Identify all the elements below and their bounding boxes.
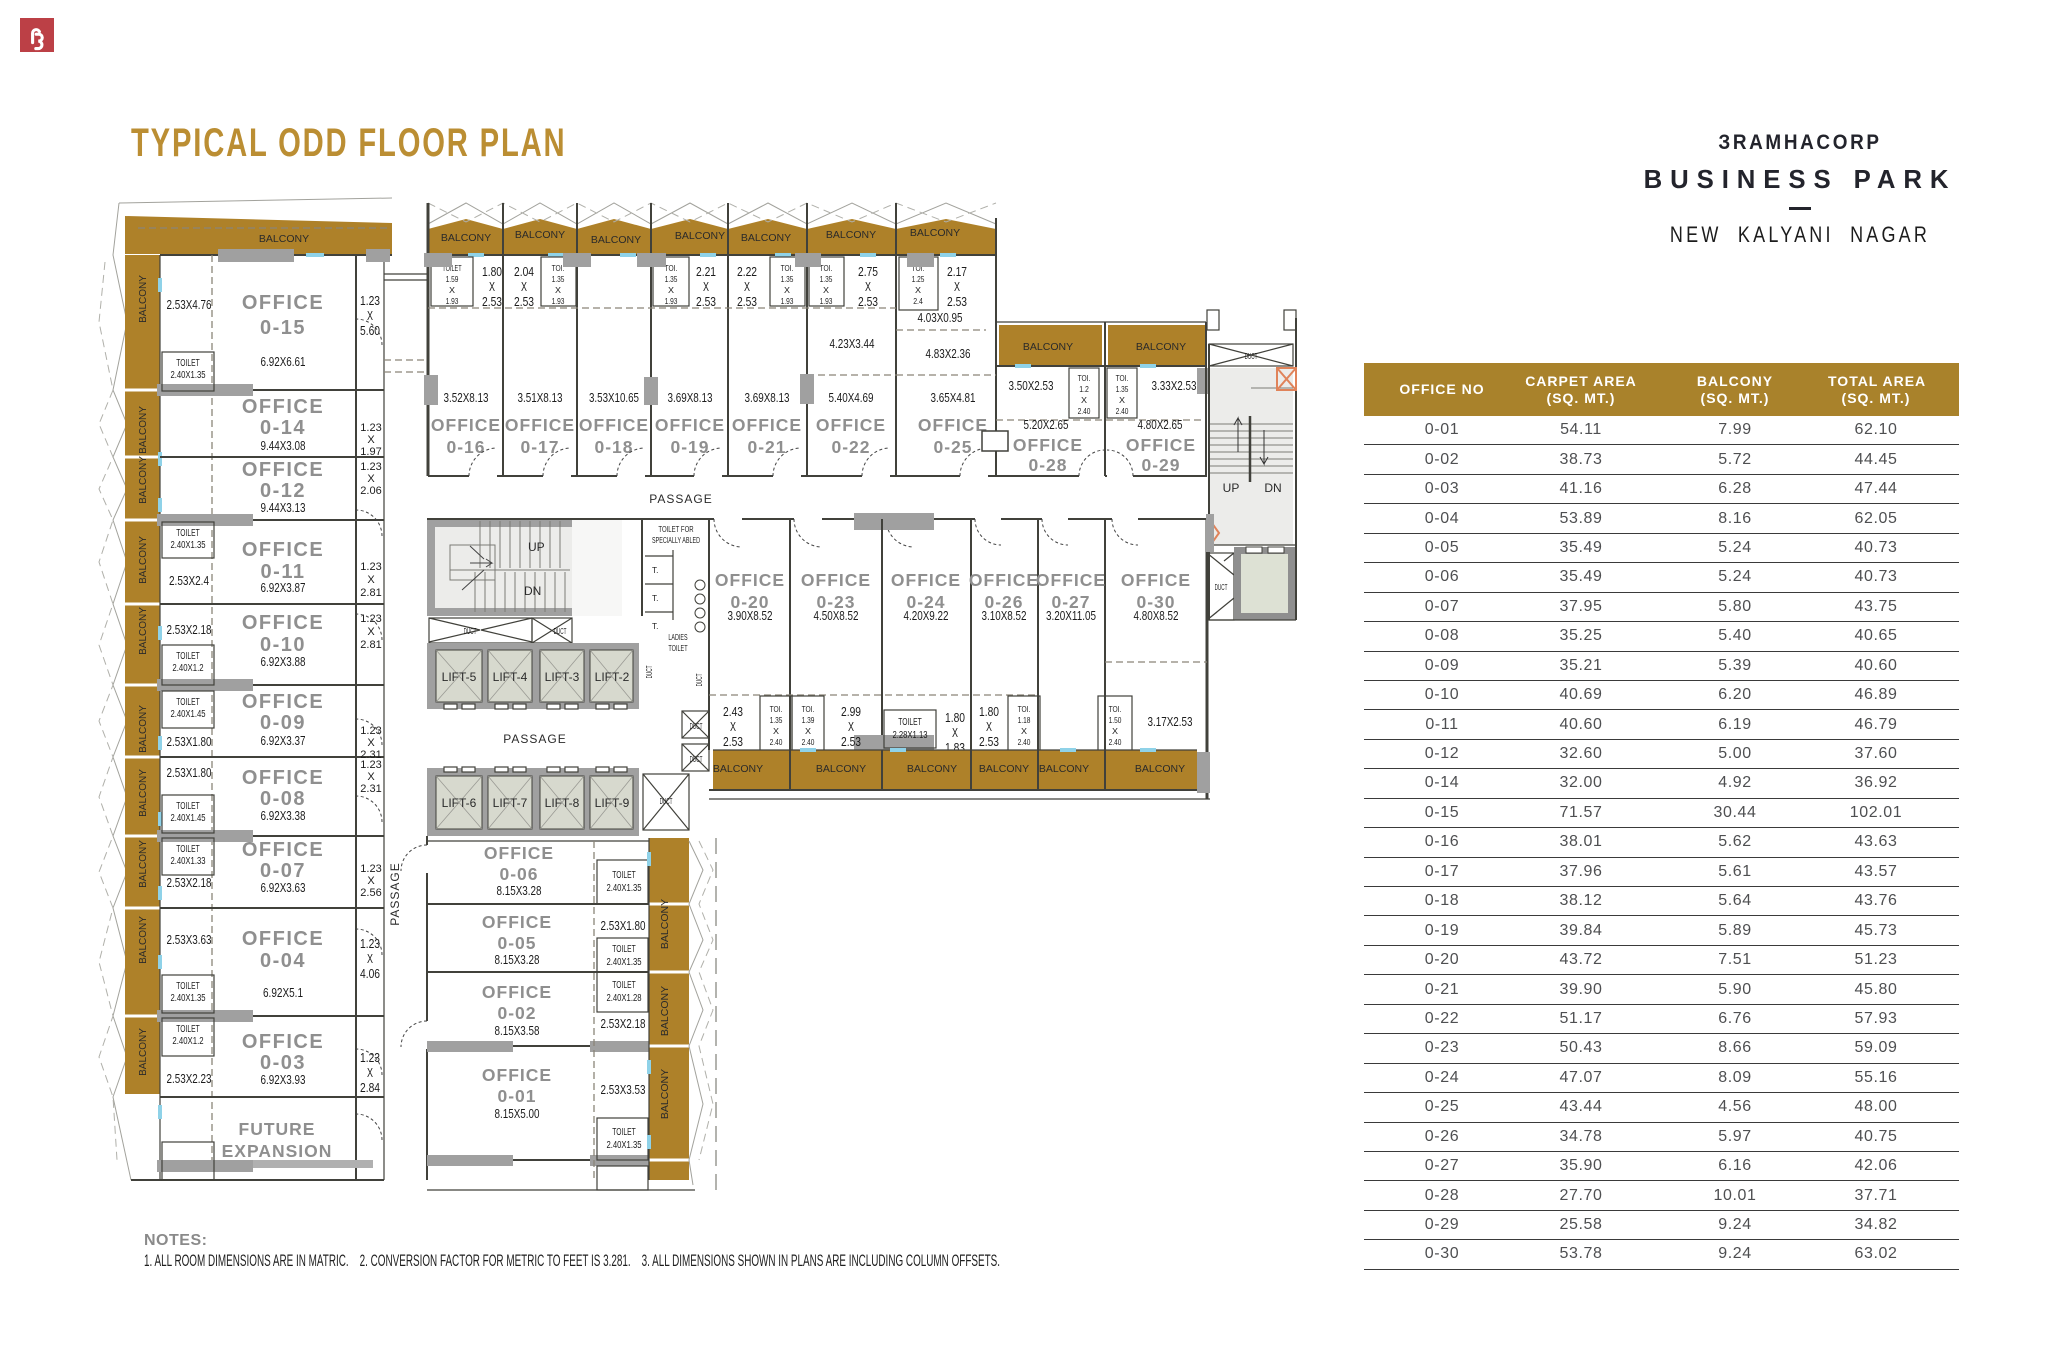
svg-text:3.65X4.81: 3.65X4.81 (931, 390, 976, 405)
svg-text:6.92X3.87: 6.92X3.87 (261, 580, 306, 595)
svg-text:2.53X3.53: 2.53X3.53 (601, 1082, 646, 1097)
svg-text:X: X (823, 285, 829, 295)
svg-text:OFFICE: OFFICE (1036, 570, 1106, 590)
svg-text:2.40: 2.40 (802, 737, 815, 747)
svg-text:X: X (489, 279, 495, 294)
svg-text:DN: DN (1264, 481, 1281, 495)
svg-text:DUCT: DUCT (690, 754, 703, 764)
svg-text:BALCONY: BALCONY (259, 233, 309, 245)
svg-text:X: X (703, 279, 709, 294)
svg-text:1.23: 1.23 (360, 759, 381, 771)
svg-text:X: X (865, 279, 871, 294)
svg-text:TOI.: TOI. (1018, 704, 1031, 714)
svg-text:3.33X2.53: 3.33X2.53 (1152, 378, 1197, 393)
svg-text:3.53X10.65: 3.53X10.65 (589, 390, 639, 405)
svg-text:3.90X8.52: 3.90X8.52 (728, 608, 773, 623)
svg-text:0-12: 0-12 (260, 480, 306, 502)
svg-text:X: X (367, 434, 375, 446)
svg-text:0-01: 0-01 (497, 1086, 536, 1106)
svg-text:3.51X8.13: 3.51X8.13 (518, 390, 563, 405)
svg-text:X: X (1119, 395, 1125, 405)
svg-text:2.53X3.63: 2.53X3.63 (167, 932, 212, 947)
svg-text:X: X (521, 279, 527, 294)
svg-text:BALCONY: BALCONY (515, 229, 565, 241)
svg-text:6.92X3.37: 6.92X3.37 (261, 733, 306, 748)
svg-text:2.53: 2.53 (858, 294, 878, 309)
svg-text:BALCONY: BALCONY (741, 232, 791, 244)
svg-text:X: X (730, 719, 736, 734)
svg-text:1.35: 1.35 (820, 274, 833, 284)
svg-text:1.23: 1.23 (360, 936, 380, 951)
svg-text:X: X (773, 726, 779, 736)
svg-text:TOILET: TOILET (668, 643, 688, 653)
svg-text:0-07: 0-07 (260, 860, 306, 882)
svg-text:2.28X1.13: 2.28X1.13 (892, 730, 927, 741)
svg-text:OFFICE: OFFICE (1121, 570, 1191, 590)
svg-text:LIFT-7: LIFT-7 (493, 796, 528, 810)
svg-text:2.53: 2.53 (514, 294, 534, 309)
svg-text:1.23: 1.23 (360, 1050, 380, 1065)
svg-text:1.50: 1.50 (1109, 715, 1122, 725)
svg-text:OFFICE: OFFICE (482, 912, 552, 932)
svg-text:DUCT: DUCT (694, 673, 704, 686)
svg-text:2.40: 2.40 (1018, 737, 1031, 747)
svg-text:0-16: 0-16 (446, 437, 485, 457)
svg-text:OFFICE: OFFICE (918, 415, 988, 435)
svg-text:BALCONY: BALCONY (138, 456, 149, 504)
svg-text:T.: T. (652, 565, 658, 575)
svg-text:X: X (784, 285, 790, 295)
svg-text:2.99: 2.99 (841, 704, 861, 719)
svg-text:OFFICE: OFFICE (242, 928, 324, 950)
svg-text:OFFICE: OFFICE (242, 292, 324, 314)
svg-text:0-05: 0-05 (497, 933, 536, 953)
svg-text:4.80X8.52: 4.80X8.52 (1134, 608, 1179, 623)
svg-text:X: X (954, 279, 960, 294)
svg-text:DN: DN (524, 584, 541, 598)
svg-text:5.40X4.69: 5.40X4.69 (829, 390, 874, 405)
svg-text:BALCONY: BALCONY (1023, 341, 1073, 353)
svg-text:BALCONY: BALCONY (441, 232, 491, 244)
svg-text:2.53: 2.53 (947, 294, 967, 309)
svg-text:2.53X2.4: 2.53X2.4 (169, 573, 209, 588)
svg-text:X: X (1021, 726, 1027, 736)
svg-text:TOILET: TOILET (176, 651, 199, 662)
svg-text:4.23X3.44: 4.23X3.44 (830, 336, 875, 351)
svg-text:1.80: 1.80 (945, 710, 965, 725)
svg-text:0-21: 0-21 (747, 437, 786, 457)
svg-text:PASSAGE: PASSAGE (503, 732, 566, 746)
svg-text:2.40X1.35: 2.40X1.35 (606, 957, 641, 968)
svg-text:6.92X3.38: 6.92X3.38 (261, 808, 306, 823)
svg-text:X: X (744, 279, 750, 294)
svg-text:2.40X1.35: 2.40X1.35 (170, 370, 205, 381)
svg-text:LIFT-9: LIFT-9 (595, 796, 630, 810)
svg-text:EXPANSION: EXPANSION (222, 1141, 333, 1161)
svg-text:2.40X1.2: 2.40X1.2 (172, 1036, 204, 1047)
svg-text:TOILET: TOILET (176, 528, 199, 539)
svg-text:0-09: 0-09 (260, 712, 306, 734)
svg-text:2.53: 2.53 (723, 734, 743, 749)
svg-text:1.23: 1.23 (360, 725, 381, 737)
svg-text:0-04: 0-04 (260, 950, 306, 972)
svg-text:TOI.: TOI. (781, 263, 794, 273)
svg-text:6.92X3.88: 6.92X3.88 (261, 654, 306, 669)
svg-text:BALCONY: BALCONY (1039, 763, 1089, 775)
svg-text:OFFICE: OFFICE (505, 415, 575, 435)
svg-text:1.35: 1.35 (665, 274, 678, 284)
svg-text:BALCONY: BALCONY (816, 763, 866, 775)
svg-text:OFFICE: OFFICE (655, 415, 725, 435)
svg-text:TOILET: TOILET (612, 870, 635, 881)
svg-text:1.97: 1.97 (360, 446, 381, 458)
svg-text:X: X (805, 726, 811, 736)
svg-text:6.92X3.63: 6.92X3.63 (261, 880, 306, 895)
svg-text:X: X (449, 285, 455, 295)
svg-text:SPECIALLY ABLED: SPECIALLY ABLED (652, 535, 700, 545)
svg-text:X: X (668, 285, 674, 295)
svg-text:1.23: 1.23 (360, 293, 380, 308)
svg-text:BALCONY: BALCONY (826, 229, 876, 241)
svg-text:OFFICE: OFFICE (242, 612, 324, 634)
svg-text:2.06: 2.06 (360, 485, 381, 497)
svg-text:LIFT-5: LIFT-5 (442, 670, 477, 684)
svg-text:X: X (367, 951, 373, 966)
svg-text:FUTURE: FUTURE (239, 1119, 316, 1139)
svg-text:UP: UP (528, 540, 545, 554)
svg-text:T.: T. (652, 621, 658, 631)
svg-text:2.75: 2.75 (858, 264, 878, 279)
svg-text:2.53: 2.53 (979, 734, 999, 749)
svg-text:2.53X2.18: 2.53X2.18 (167, 622, 212, 637)
svg-text:1.93: 1.93 (446, 296, 459, 306)
svg-text:TOILET: TOILET (176, 801, 199, 812)
svg-text:BALCONY: BALCONY (979, 763, 1029, 775)
svg-text:OFFICE: OFFICE (732, 415, 802, 435)
svg-text:2.40X1.35: 2.40X1.35 (170, 540, 205, 551)
svg-text:OFFICE: OFFICE (242, 767, 324, 789)
svg-text:1.39: 1.39 (802, 715, 815, 725)
svg-text:3.52X8.13: 3.52X8.13 (444, 390, 489, 405)
svg-text:DUCT: DUCT (1215, 582, 1228, 592)
svg-text:DUCT: DUCT (1245, 351, 1258, 361)
svg-text:2.53X4.76: 2.53X4.76 (167, 297, 212, 312)
svg-text:1.2: 1.2 (1079, 384, 1089, 394)
svg-text:OFFICE: OFFICE (891, 570, 961, 590)
svg-text:X: X (952, 725, 958, 740)
svg-text:0-10: 0-10 (260, 634, 306, 656)
svg-text:4.06: 4.06 (360, 966, 380, 981)
svg-text:BALCONY: BALCONY (659, 899, 671, 949)
svg-text:0-15: 0-15 (260, 317, 306, 339)
svg-text:2.43: 2.43 (723, 704, 743, 719)
svg-text:1.23: 1.23 (360, 461, 381, 473)
svg-text:OFFICE: OFFICE (1126, 435, 1196, 455)
svg-text:LADIES: LADIES (668, 632, 687, 642)
svg-text:BALCONY: BALCONY (138, 607, 149, 655)
svg-text:BALCONY: BALCONY (659, 986, 671, 1036)
svg-text:OFFICE: OFFICE (242, 1031, 324, 1053)
svg-text:2.40X1.2: 2.40X1.2 (172, 663, 204, 674)
svg-text:X: X (367, 308, 373, 323)
svg-text:X: X (915, 285, 921, 295)
svg-text:8.15X3.28: 8.15X3.28 (495, 952, 540, 967)
svg-text:2.53X2.18: 2.53X2.18 (167, 875, 212, 890)
svg-text:3.10X8.52: 3.10X8.52 (982, 608, 1027, 623)
svg-text:X: X (367, 737, 375, 749)
svg-text:BALCONY: BALCONY (659, 1069, 671, 1119)
svg-text:BALCONY: BALCONY (907, 763, 957, 775)
svg-text:2.22: 2.22 (737, 264, 757, 279)
svg-text:2.40X1.33: 2.40X1.33 (170, 856, 205, 867)
svg-text:6.92X6.61: 6.92X6.61 (261, 354, 306, 369)
svg-text:OFFICE: OFFICE (1013, 435, 1083, 455)
svg-text:0-29: 0-29 (1141, 455, 1180, 475)
svg-text:TOI.: TOI. (552, 263, 565, 273)
svg-text:TOILET: TOILET (176, 844, 199, 855)
svg-text:0-28: 0-28 (1028, 455, 1067, 475)
svg-text:X: X (555, 285, 561, 295)
svg-text:BALCONY: BALCONY (591, 234, 641, 246)
svg-text:1.35: 1.35 (781, 274, 794, 284)
svg-text:BALCONY: BALCONY (910, 227, 960, 239)
svg-text:TOILET: TOILET (176, 981, 199, 992)
svg-text:4.83X2.36: 4.83X2.36 (926, 346, 971, 361)
svg-text:1.23: 1.23 (360, 561, 381, 573)
svg-text:TOILET: TOILET (176, 1024, 199, 1035)
svg-text:TOILET: TOILET (898, 717, 921, 728)
svg-text:0-25: 0-25 (933, 437, 972, 457)
svg-text:LIFT-2: LIFT-2 (595, 670, 630, 684)
svg-text:T.: T. (652, 593, 658, 603)
svg-text:OFFICE: OFFICE (242, 396, 324, 418)
svg-text:OFFICE: OFFICE (816, 415, 886, 435)
svg-text:1.80: 1.80 (979, 704, 999, 719)
svg-text:2.53X2.23: 2.53X2.23 (167, 1071, 212, 1086)
svg-text:1.59: 1.59 (446, 274, 459, 284)
svg-text:X: X (848, 719, 854, 734)
svg-text:1.25: 1.25 (912, 274, 925, 284)
svg-text:2.40: 2.40 (1078, 406, 1091, 416)
svg-text:0-19: 0-19 (670, 437, 709, 457)
svg-text:2.40X1.35: 2.40X1.35 (170, 993, 205, 1004)
svg-text:2.40X1.28: 2.40X1.28 (606, 993, 641, 1004)
svg-text:4.80X2.65: 4.80X2.65 (1138, 417, 1183, 432)
svg-text:TOILET: TOILET (176, 697, 199, 708)
svg-text:2.40: 2.40 (770, 737, 783, 747)
svg-text:1.23: 1.23 (360, 863, 381, 875)
svg-text:2.17: 2.17 (947, 264, 967, 279)
svg-text:2.81: 2.81 (360, 639, 381, 651)
svg-text:BALCONY: BALCONY (138, 916, 149, 964)
svg-text:OFFICE: OFFICE (484, 843, 554, 863)
svg-text:BALCONY: BALCONY (138, 705, 149, 753)
svg-text:X: X (367, 1065, 373, 1080)
svg-text:5.60: 5.60 (360, 323, 380, 338)
svg-text:2.81: 2.81 (360, 587, 381, 599)
svg-text:BALCONY: BALCONY (138, 1028, 149, 1076)
svg-text:0-22: 0-22 (831, 437, 870, 457)
svg-text:3.20X11.05: 3.20X11.05 (1046, 608, 1096, 623)
svg-text:OFFICE: OFFICE (242, 839, 324, 861)
svg-text:X: X (1081, 395, 1087, 405)
svg-text:8.15X3.28: 8.15X3.28 (497, 883, 542, 898)
svg-text:0-02: 0-02 (497, 1003, 536, 1023)
svg-text:0-17: 0-17 (520, 437, 559, 457)
svg-text:OFFICE: OFFICE (801, 570, 871, 590)
svg-text:UP: UP (1223, 481, 1240, 495)
svg-text:BALCONY: BALCONY (713, 763, 763, 775)
svg-text:2.56: 2.56 (360, 887, 381, 899)
svg-text:TOI.: TOI. (1116, 373, 1129, 383)
svg-text:8.15X5.00: 8.15X5.00 (495, 1106, 540, 1121)
svg-text:TOI.: TOI. (770, 704, 783, 714)
svg-text:BALCONY: BALCONY (675, 230, 725, 242)
svg-text:BALCONY: BALCONY (138, 769, 149, 817)
svg-text:X: X (367, 473, 375, 485)
svg-text:2.40: 2.40 (1116, 406, 1129, 416)
svg-text:BALCONY: BALCONY (1135, 763, 1185, 775)
svg-text:0-18: 0-18 (594, 437, 633, 457)
svg-text:2.53: 2.53 (737, 294, 757, 309)
svg-text:0-03: 0-03 (260, 1052, 306, 1074)
svg-text:TOILET FOR: TOILET FOR (658, 524, 693, 534)
svg-text:OFFICE: OFFICE (242, 539, 324, 561)
svg-text:3.50X2.53: 3.50X2.53 (1009, 378, 1054, 393)
svg-text:DUCT: DUCT (644, 665, 654, 678)
svg-text:1.93: 1.93 (665, 296, 678, 306)
svg-text:0-06: 0-06 (499, 864, 538, 884)
svg-text:5.20X2.65: 5.20X2.65 (1024, 417, 1069, 432)
svg-text:2.84: 2.84 (360, 1080, 380, 1095)
svg-text:OFFICE: OFFICE (715, 570, 785, 590)
svg-text:TOI.: TOI. (802, 704, 815, 714)
svg-text:1.35: 1.35 (770, 715, 783, 725)
svg-text:2.40X1.45: 2.40X1.45 (170, 709, 205, 720)
svg-text:OFFICE: OFFICE (482, 982, 552, 1002)
svg-text:1.93: 1.93 (552, 296, 565, 306)
svg-text:TOILET: TOILET (612, 980, 635, 991)
svg-text:LIFT-8: LIFT-8 (545, 796, 580, 810)
svg-text:2.53: 2.53 (696, 294, 716, 309)
svg-text:2.40X1.45: 2.40X1.45 (170, 813, 205, 824)
svg-text:DUCT: DUCT (660, 796, 673, 806)
svg-text:2.53: 2.53 (482, 294, 502, 309)
svg-text:1.23: 1.23 (360, 422, 381, 434)
svg-text:2.40: 2.40 (1109, 737, 1122, 747)
svg-text:2.04: 2.04 (514, 264, 534, 279)
svg-text:2.40X1.35: 2.40X1.35 (606, 1140, 641, 1151)
svg-text:TOI.: TOI. (820, 263, 833, 273)
svg-text:2.40X1.35: 2.40X1.35 (606, 883, 641, 894)
svg-text:PASSAGE: PASSAGE (649, 492, 712, 506)
svg-text:TOI.: TOI. (665, 263, 678, 273)
svg-text:4.20X9.22: 4.20X9.22 (904, 608, 949, 623)
svg-text:DUCT: DUCT (690, 721, 703, 731)
svg-text:OFFICE: OFFICE (431, 415, 501, 435)
svg-text:X: X (367, 626, 375, 638)
svg-text:DUCT: DUCT (554, 626, 567, 636)
svg-text:TOI.: TOI. (1109, 704, 1122, 714)
svg-text:X: X (986, 719, 992, 734)
svg-text:2.53X1.80: 2.53X1.80 (167, 765, 212, 780)
svg-text:1.35: 1.35 (552, 274, 565, 284)
svg-text:1.93: 1.93 (820, 296, 833, 306)
svg-text:X: X (367, 771, 375, 783)
svg-text:3.69X8.13: 3.69X8.13 (668, 390, 713, 405)
svg-text:X: X (367, 875, 375, 887)
svg-text:2.53X2.18: 2.53X2.18 (601, 1016, 646, 1031)
svg-text:TOILET: TOILET (176, 358, 199, 369)
svg-text:1.18: 1.18 (1018, 715, 1031, 725)
svg-text:6.92X5.1: 6.92X5.1 (263, 985, 303, 1000)
svg-text:TOI.: TOI. (1078, 373, 1091, 383)
svg-text:2.4: 2.4 (913, 296, 923, 306)
svg-text:OFFICE: OFFICE (242, 459, 324, 481)
svg-text:X: X (367, 574, 375, 586)
svg-text:4.03X0.95: 4.03X0.95 (918, 310, 963, 325)
svg-text:0-14: 0-14 (260, 417, 306, 439)
svg-text:2.53: 2.53 (841, 734, 861, 749)
svg-text:BALCONY: BALCONY (138, 536, 149, 584)
svg-text:3.17X2.53: 3.17X2.53 (1148, 714, 1193, 729)
svg-text:1.35: 1.35 (1116, 384, 1129, 394)
svg-text:2.53X1.80: 2.53X1.80 (167, 734, 212, 749)
svg-text:8.15X3.58: 8.15X3.58 (495, 1023, 540, 1038)
svg-text:OFFICE: OFFICE (579, 415, 649, 435)
svg-text:LIFT-6: LIFT-6 (442, 796, 477, 810)
svg-text:OFFICE: OFFICE (242, 691, 324, 713)
svg-text:3.69X8.13: 3.69X8.13 (745, 390, 790, 405)
svg-text:1.80: 1.80 (482, 264, 502, 279)
svg-text:1.93: 1.93 (781, 296, 794, 306)
svg-text:TOILET: TOILET (612, 944, 635, 955)
svg-text:BALCONY: BALCONY (138, 275, 149, 323)
svg-text:9.44X3.13: 9.44X3.13 (261, 500, 306, 515)
svg-text:PASSAGE: PASSAGE (388, 862, 402, 925)
svg-text:BALCONY: BALCONY (138, 406, 149, 454)
svg-text:DUCT: DUCT (464, 626, 477, 636)
svg-text:2.21: 2.21 (696, 264, 716, 279)
svg-text:OFFICE: OFFICE (482, 1065, 552, 1085)
svg-text:9.44X3.08: 9.44X3.08 (261, 438, 306, 453)
svg-text:2.53X1.80: 2.53X1.80 (601, 918, 646, 933)
svg-text:2.31: 2.31 (360, 783, 381, 795)
svg-text:0-08: 0-08 (260, 788, 306, 810)
svg-text:LIFT-3: LIFT-3 (545, 670, 580, 684)
svg-text:LIFT-4: LIFT-4 (493, 670, 528, 684)
svg-text:BALCONY: BALCONY (1136, 341, 1186, 353)
svg-text:BALCONY: BALCONY (138, 840, 149, 888)
svg-text:X: X (1112, 726, 1118, 736)
svg-text:TOILET: TOILET (612, 1127, 635, 1138)
svg-text:4.50X8.52: 4.50X8.52 (814, 608, 859, 623)
svg-text:6.92X3.93: 6.92X3.93 (261, 1072, 306, 1087)
svg-text:OFFICE: OFFICE (969, 570, 1039, 590)
